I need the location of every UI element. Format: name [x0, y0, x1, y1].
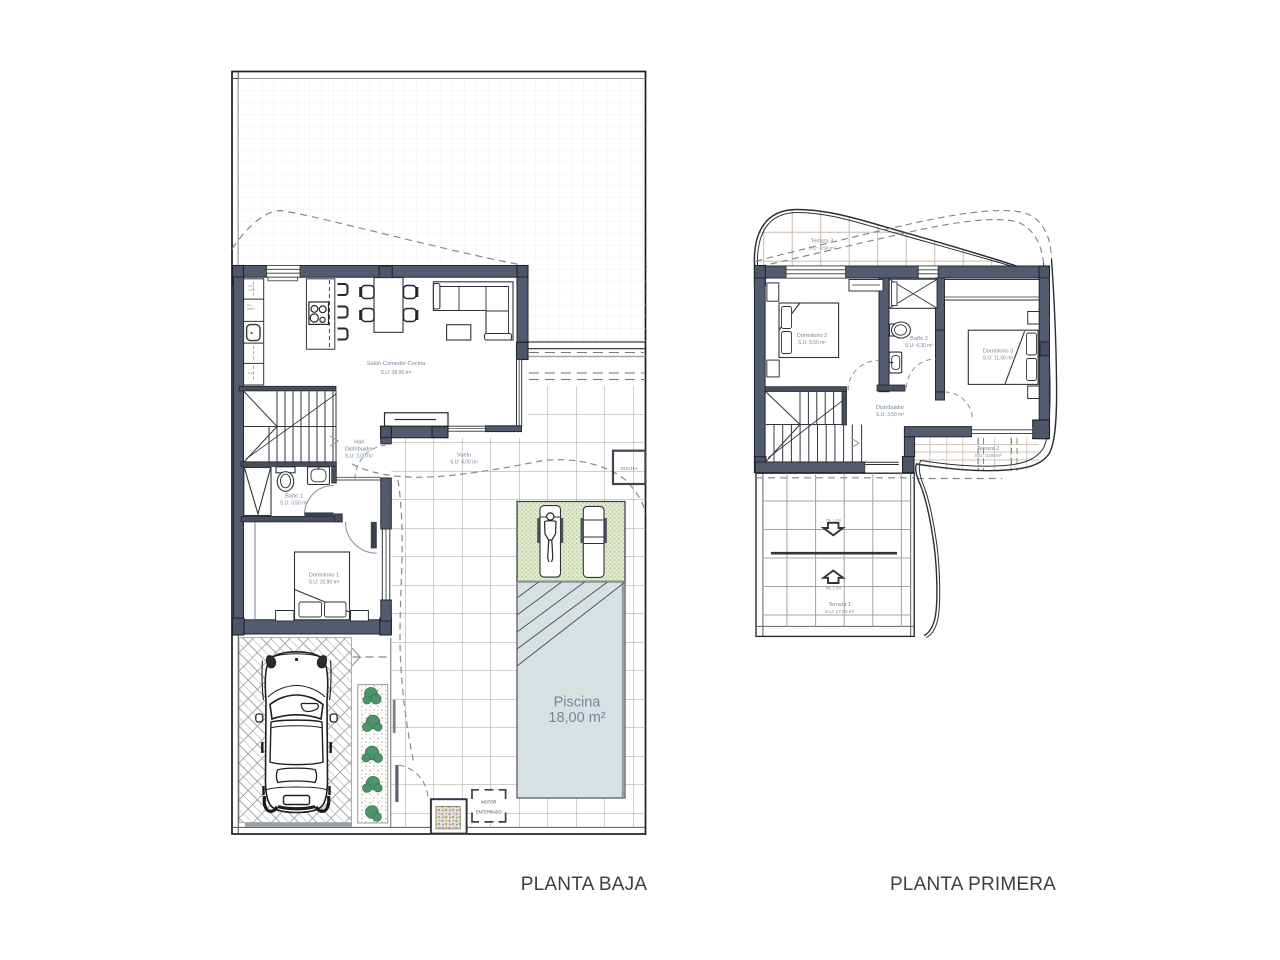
svg-text:horno: horno — [248, 284, 255, 288]
svg-text:PLANTA PRIMERA: PLANTA PRIMERA — [890, 874, 1056, 895]
svg-text:Terraza 3: Terraza 3 — [811, 239, 833, 245]
svg-text:Pte 1-2%: Pte 1-2% — [826, 587, 842, 591]
svg-text:Distribuidor: Distribuidor — [876, 405, 904, 411]
svg-text:S.U: 28,00 m²: S.U: 28,00 m² — [381, 370, 412, 376]
svg-text:S.U: 10,90 m²: S.U: 10,90 m² — [309, 580, 340, 586]
svg-text:Dormitorio 2: Dormitorio 2 — [797, 333, 827, 339]
svg-text:S.U: 4,50 m²: S.U: 4,50 m² — [809, 246, 836, 252]
svg-text:S.U: 4,00 m²: S.U: 4,00 m² — [450, 460, 478, 466]
svg-text:Dormitorio 3: Dormitorio 3 — [983, 349, 1013, 355]
svg-text:S.U: 11,00 m²: S.U: 11,00 m² — [983, 356, 1014, 362]
svg-text:S.U: 3,00 m²: S.U: 3,00 m² — [345, 454, 373, 460]
svg-text:S.U: 17,00 m²: S.U: 17,00 m² — [825, 609, 855, 615]
svg-text:S.U: 9,50 m²: S.U: 9,50 m² — [798, 340, 826, 346]
svg-text:ENTERRADO: ENTERRADO — [476, 810, 502, 815]
svg-text:S.U: 3,00 m²: S.U: 3,00 m² — [975, 453, 1002, 459]
svg-text:18,00 m²: 18,00 m² — [548, 710, 605, 726]
svg-text:S.U: 4,30 m²: S.U: 4,30 m² — [905, 343, 933, 349]
svg-text:PLANTA BAJA: PLANTA BAJA — [521, 874, 648, 895]
svg-text:lava: lava — [247, 303, 252, 307]
svg-text:Baño 2: Baño 2 — [910, 336, 928, 342]
svg-text:vajillas: vajillas — [247, 306, 255, 310]
svg-text:Distribuidor: Distribuidor — [345, 447, 373, 453]
svg-text:MOTOR: MOTOR — [481, 800, 496, 805]
svg-text:DUCHA: DUCHA — [620, 466, 638, 472]
svg-text:frigo: frigo — [248, 371, 254, 375]
svg-text:Terraza 1: Terraza 1 — [828, 602, 850, 608]
svg-text:Hall: Hall — [354, 440, 364, 446]
svg-text:S.U: 3,50 m²: S.U: 3,50 m² — [876, 412, 904, 418]
svg-text:Piscina: Piscina — [554, 695, 602, 711]
svg-text:Pte 1-2%: Pte 1-2% — [826, 519, 842, 523]
svg-text:Vuelo: Vuelo — [457, 453, 471, 459]
svg-text:Dormitorio 1: Dormitorio 1 — [309, 573, 339, 579]
svg-text:Salón-Comedor-Cocina: Salón-Comedor-Cocina — [367, 361, 426, 367]
svg-text:S.U: 3,50 m²: S.U: 3,50 m² — [280, 501, 308, 507]
svg-text:micro: micro — [248, 288, 255, 292]
svg-text:Terraza 2: Terraza 2 — [977, 446, 999, 452]
svg-text:Baño 1: Baño 1 — [285, 494, 303, 500]
